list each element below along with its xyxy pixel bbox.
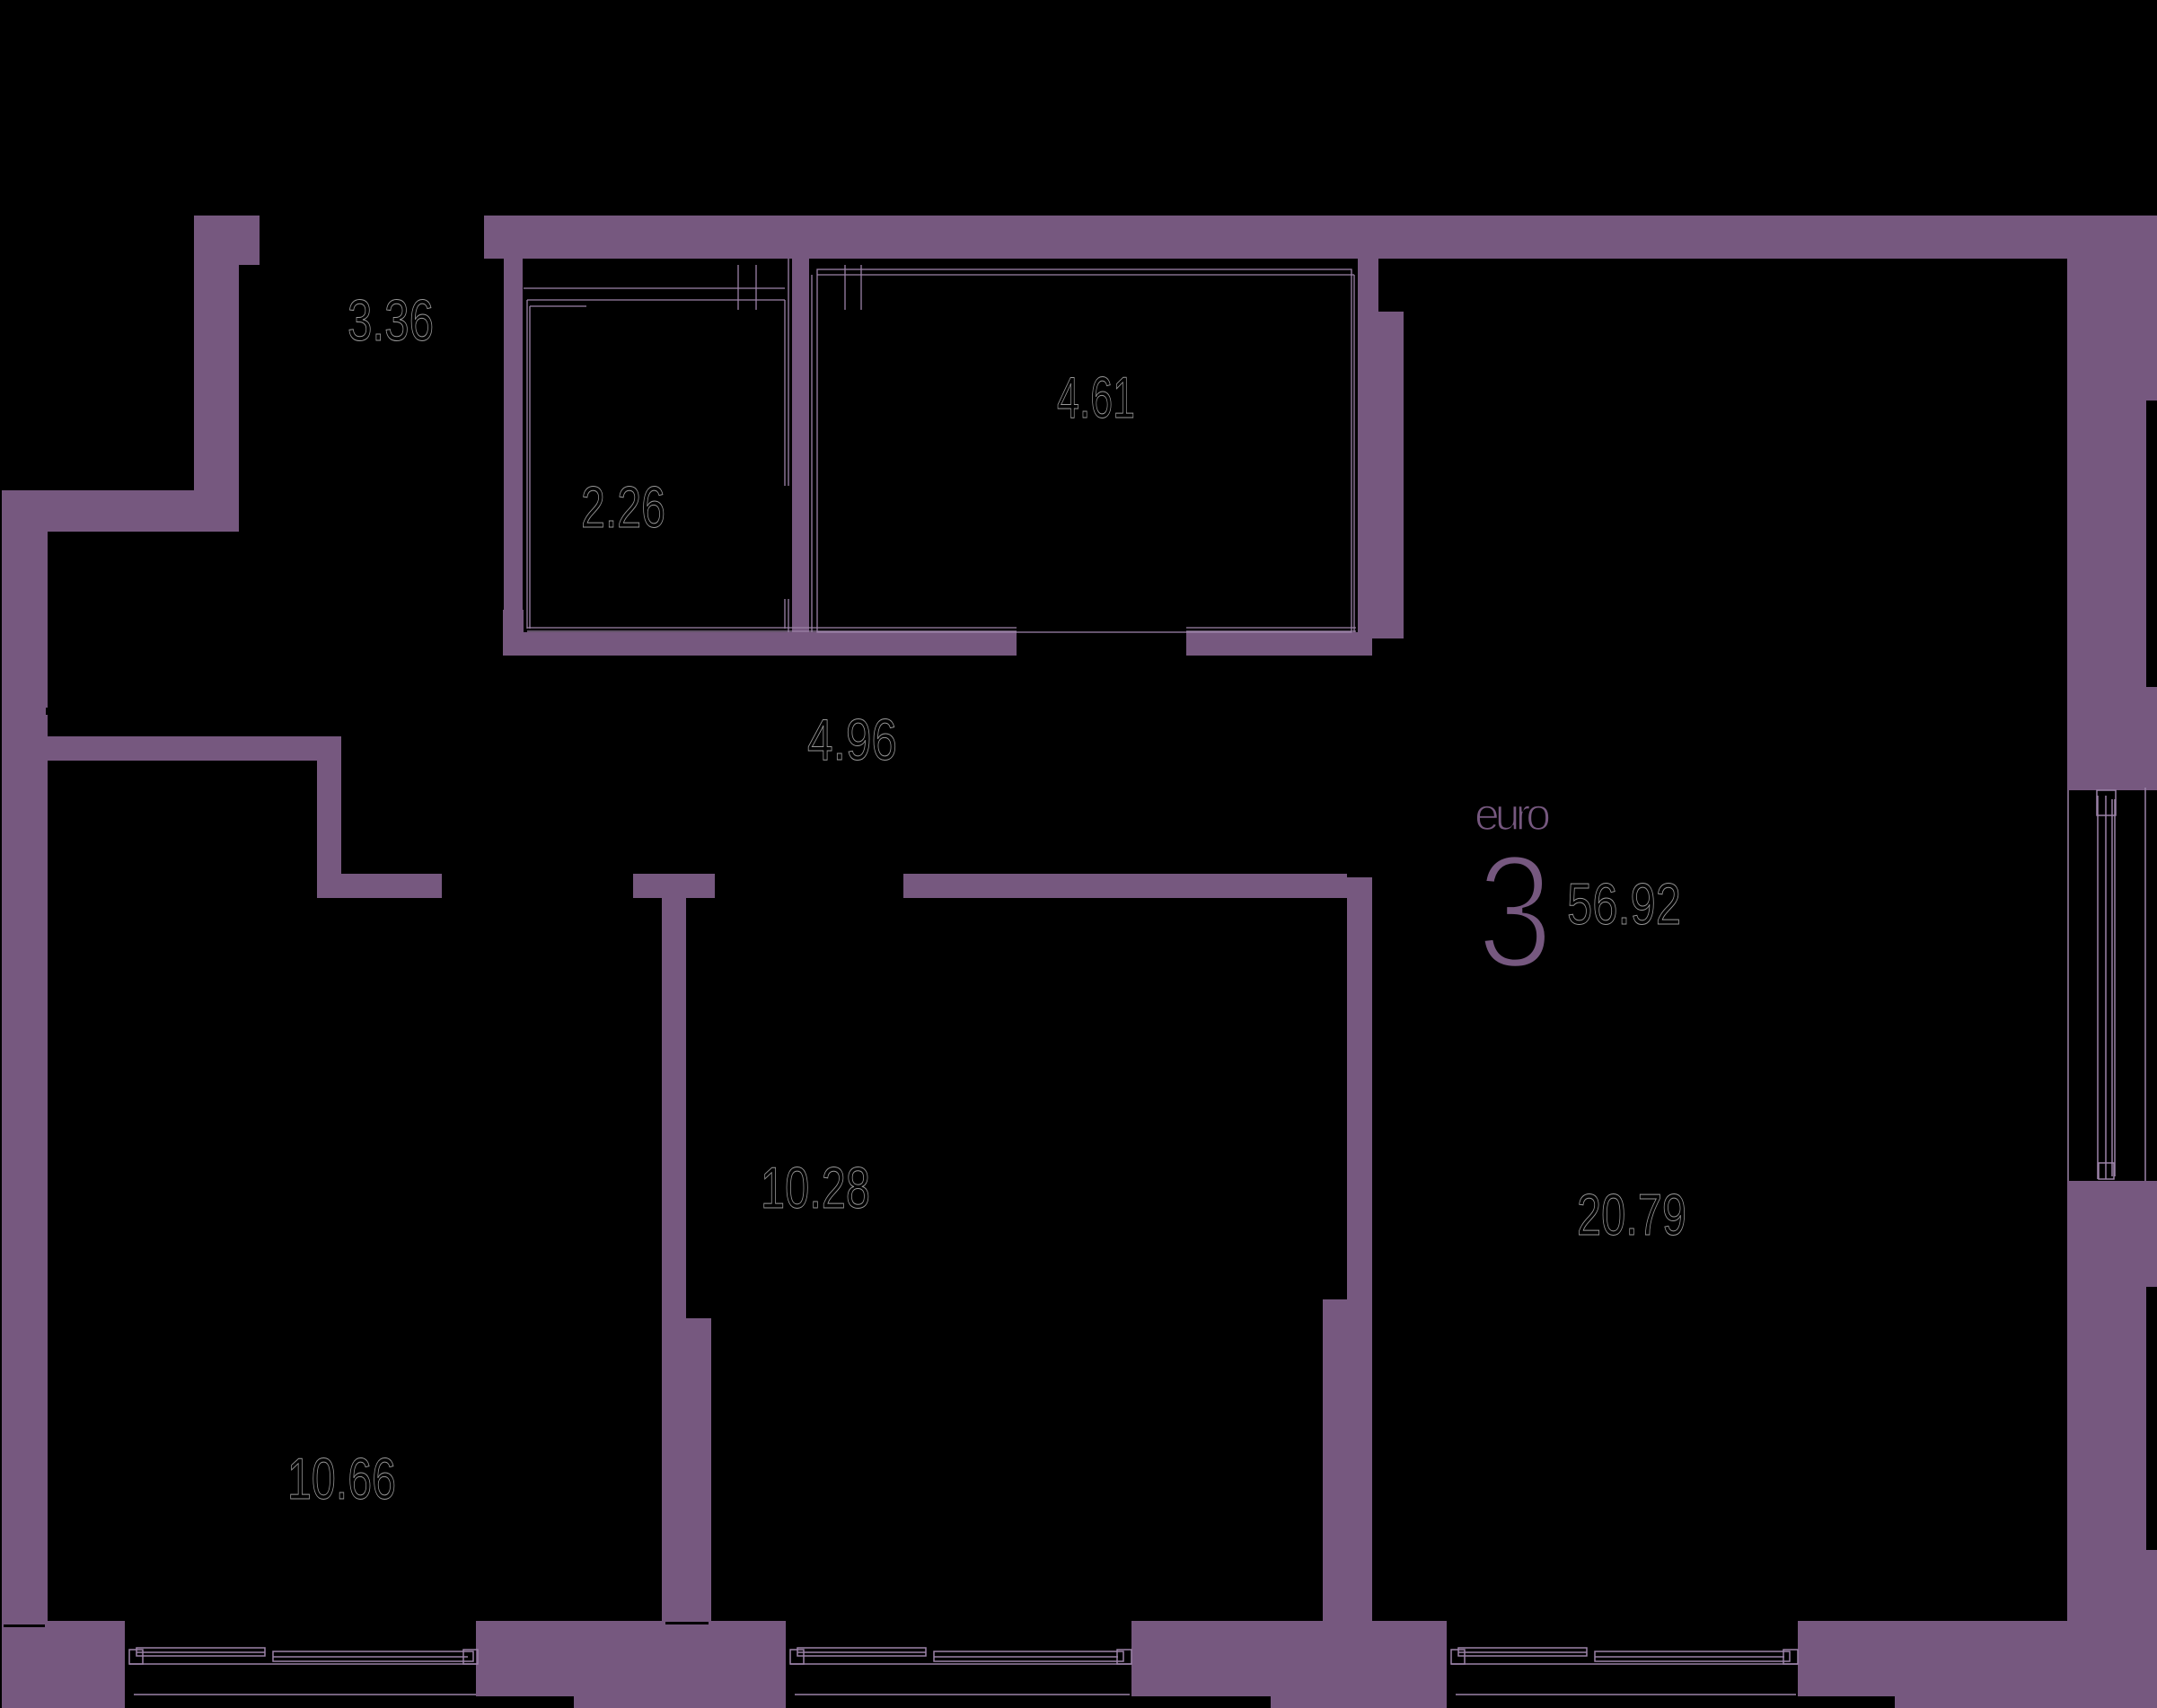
svg-text:10.66: 10.66 bbox=[287, 1446, 396, 1511]
svg-text:4.96: 4.96 bbox=[807, 707, 897, 772]
svg-text:2.26: 2.26 bbox=[581, 474, 665, 540]
svg-text:4.61: 4.61 bbox=[1057, 365, 1135, 430]
svg-text:56.92: 56.92 bbox=[1567, 871, 1681, 937]
svg-text:20.79: 20.79 bbox=[1577, 1182, 1686, 1247]
svg-text:3.36: 3.36 bbox=[348, 287, 434, 353]
svg-text:3: 3 bbox=[1477, 823, 1553, 1002]
svg-text:10.28: 10.28 bbox=[761, 1155, 870, 1220]
